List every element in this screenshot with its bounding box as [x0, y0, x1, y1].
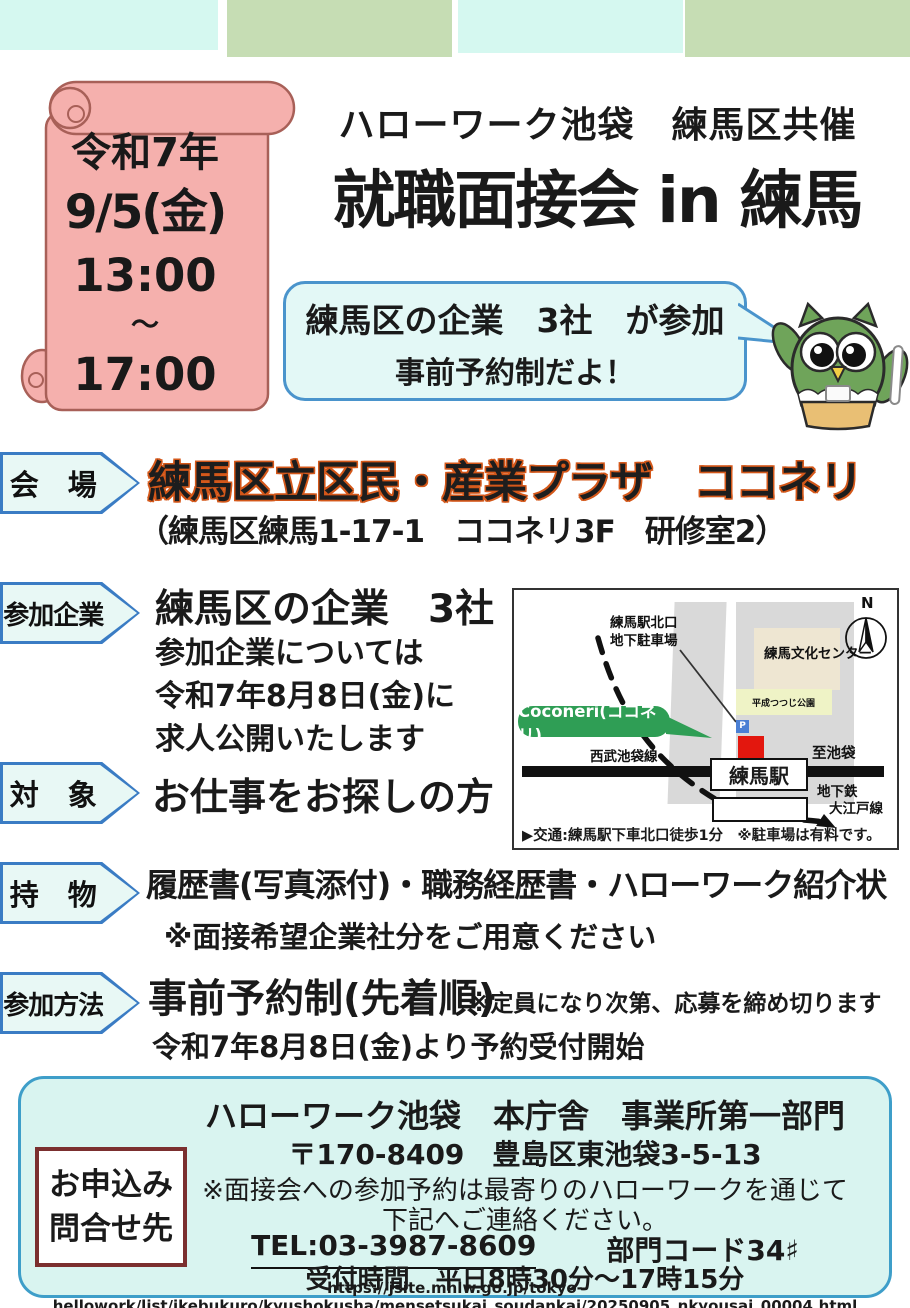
- bubble-line2: 事前予約制だよ！: [286, 348, 744, 392]
- event-date-block: 令和7年 9/5(金) 13:00 〜 17:00: [40, 126, 250, 406]
- top-bar-cyan-2: [458, 0, 683, 53]
- map-culture-center-label: 練馬文化センター: [764, 642, 872, 662]
- contact-label-box: お申込み 問合せ先: [35, 1147, 187, 1267]
- method-sub: 令和7年8月8日(金)より予約受付開始: [152, 1024, 644, 1066]
- station-south-box: [712, 797, 808, 822]
- target-text: お仕事をお探しの方: [152, 766, 494, 821]
- venue-address: （練馬区練馬1-17-1 ココネリ3F 研修室2）: [138, 506, 785, 551]
- map-subway-label: 地下鉄 大江戸線: [817, 784, 883, 818]
- bubble-line1: 練馬区の企業 3社 が参加: [286, 294, 744, 342]
- method-inline-note: ※定員になり次第、応募を締め切ります: [468, 984, 881, 1018]
- target-label: 対 象: [0, 762, 106, 824]
- contact-address: 〒170-8409 豊島区東池袋3-5-13: [171, 1133, 879, 1173]
- section-label-target: 対 象: [0, 762, 140, 824]
- contact-url: https://jsite.mhlw.go.jp/tokyo-hellowork…: [21, 1279, 889, 1308]
- map-parking-label: 練馬駅北口 地下駐車場: [610, 614, 684, 650]
- contact-box: お申込み 問合せ先 ハローワーク池袋 本庁舎 事業所第一部門 〒170-8409…: [18, 1076, 892, 1298]
- time-tilde: 〜: [40, 306, 250, 344]
- coconeri-badge-pointer: [664, 710, 714, 746]
- map-seibu-line-label: 西武池袋線: [590, 745, 658, 765]
- items-text: 履歴書(写真添付)・職務経歴書・ハローワーク紹介状: [146, 860, 886, 906]
- map-access-note: ▶交通:練馬駅下車北口徒歩1分 ※駐車場は有料です。: [522, 824, 894, 845]
- map-park-label: 平成つつじ公園: [752, 696, 815, 709]
- venue-name: 練馬区立区民・産業プラザ ココネリ: [148, 448, 862, 510]
- flyer-page: 令和7年 9/5(金) 13:00 〜 17:00 ハローワーク池袋 練馬区共催…: [0, 0, 910, 1308]
- era-year: 令和7年: [40, 126, 250, 180]
- map-to-ikebukuro-label: 至池袋: [812, 742, 856, 763]
- top-bar-green-2: [685, 0, 910, 57]
- method-title: 事前予約制(先着順): [148, 968, 496, 1024]
- compass-n-label: N: [861, 594, 874, 612]
- speech-bubble: 練馬区の企業 3社 が参加 事前予約制だよ！: [283, 281, 747, 401]
- coconeri-badge: Coconeri(ココネリ): [518, 706, 670, 737]
- companies-line2: 令和7年8月8日(金)に: [155, 675, 455, 718]
- time-start: 13:00: [40, 246, 250, 306]
- event-date: 9/5(金): [40, 180, 250, 246]
- section-label-items: 持 物: [0, 862, 140, 924]
- event-title: 就職面接会 in 練馬: [288, 150, 906, 241]
- section-label-venue: 会 場: [0, 452, 140, 514]
- companies-line3: 求人公開いたします: [155, 718, 455, 761]
- nerima-station-box: 練馬駅: [710, 758, 808, 791]
- access-marker-icon: ▶: [522, 828, 533, 844]
- parking-icon: P: [736, 720, 749, 733]
- section-label-companies: 参加企業: [0, 582, 140, 644]
- organizer-subtitle: ハローワーク池袋 練馬区共催: [295, 96, 900, 148]
- companies-label: 参加企業: [0, 582, 106, 644]
- section-label-method: 参加方法: [0, 972, 140, 1034]
- items-note: ※面接希望企業社分をご用意ください: [164, 914, 656, 956]
- top-bar-green-1: [227, 0, 452, 57]
- items-label: 持 物: [0, 862, 106, 924]
- contact-org: ハローワーク池袋 本庁舎 事業所第一部門: [171, 1091, 879, 1137]
- time-end: 17:00: [40, 344, 250, 406]
- access-map: N P 練馬駅北口 地下駐車場 練馬文化センター 平成つつじ公園 Coconer…: [512, 588, 899, 850]
- top-bar-cyan-1: [0, 0, 218, 50]
- companies-title: 練馬区の企業 3社: [155, 578, 494, 634]
- method-label: 参加方法: [0, 972, 106, 1034]
- venue-label: 会 場: [0, 452, 106, 514]
- owl-mascot: [738, 292, 910, 434]
- companies-detail: 参加企業については 令和7年8月8日(金)に 求人公開いたします: [155, 632, 455, 761]
- companies-line1: 参加企業については: [155, 632, 455, 675]
